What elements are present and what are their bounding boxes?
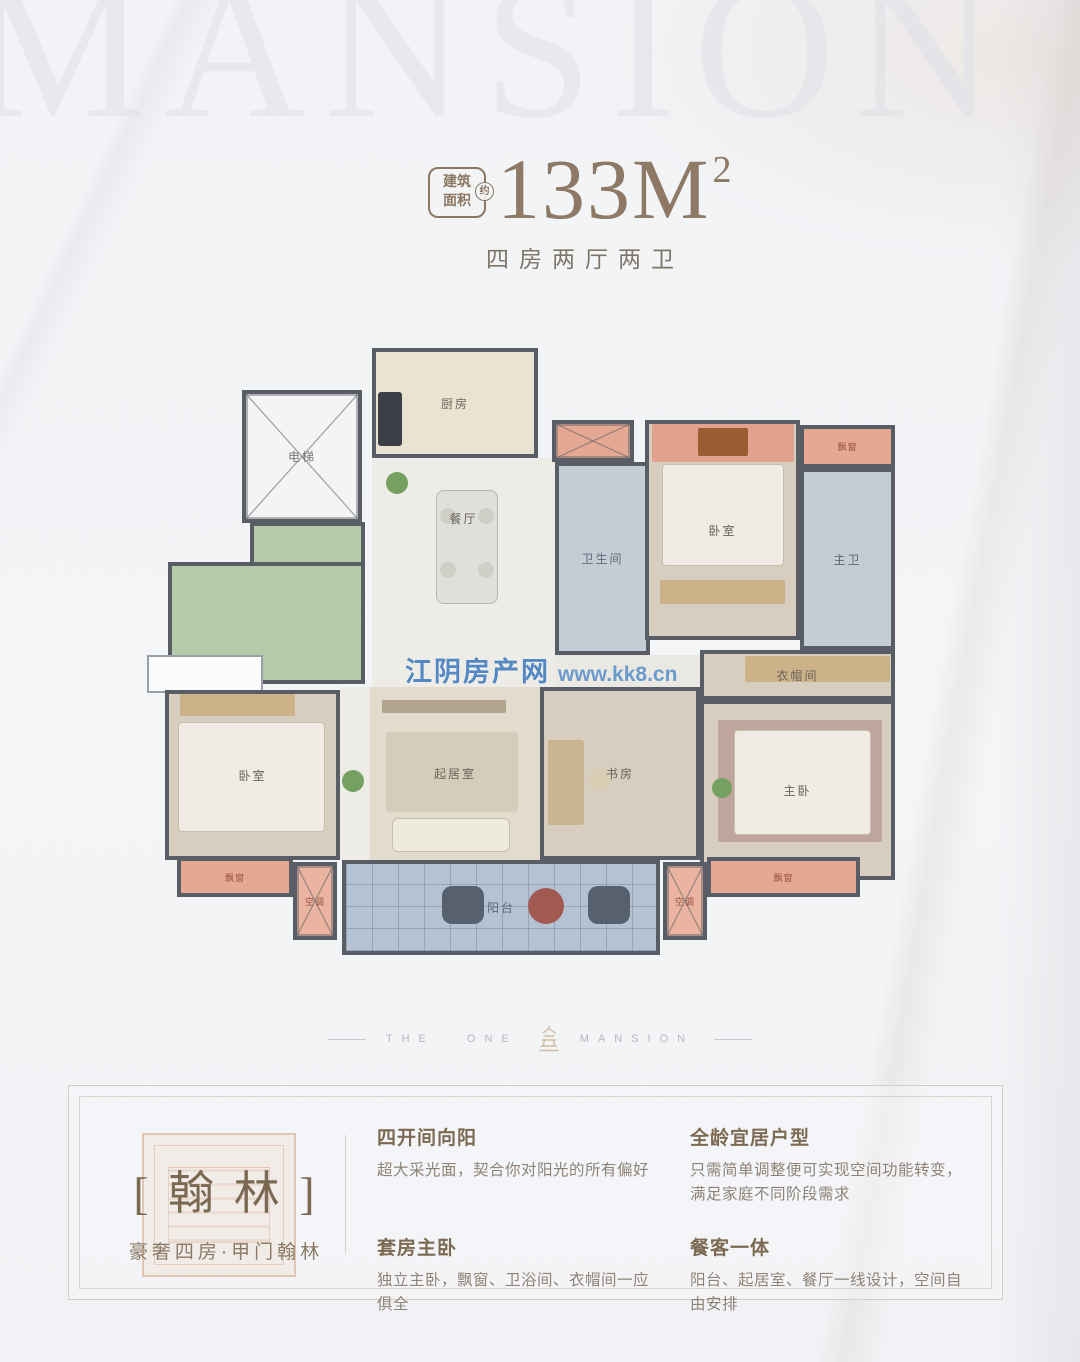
feature-title: 四开间向阳	[377, 1123, 662, 1150]
divider-dash	[328, 1039, 366, 1040]
info-box-inner-border: [ 翰 林 ] 豪奢四房·甲门翰林 四开间向阳超大采光面，契合你对阳光的所有偏好…	[79, 1096, 992, 1289]
feature-list: 四开间向阳超大采光面，契合你对阳光的所有偏好套房主卧独立主卧，飘窗、卫浴间、衣帽…	[377, 1123, 967, 1317]
furniture-balcony-chair	[588, 886, 630, 924]
room-ac-platform-north	[552, 420, 634, 462]
room-label: 电梯	[288, 448, 316, 465]
room-label: 主卫	[833, 551, 861, 568]
area-superscript: 2	[712, 149, 733, 191]
furniture-sofa	[392, 818, 510, 852]
feature-desc: 独立主卧，飘窗、卫浴间、衣帽间一应俱全	[377, 1269, 662, 1317]
furniture-wardrobe-sw	[180, 694, 295, 716]
furniture-bay-dresser	[698, 428, 748, 456]
mansion-watermark: MANSION	[0, 0, 1080, 163]
room-ac-platform-east: 空调	[663, 862, 707, 940]
info-box: [ 翰 林 ] 豪奢四房·甲门翰林 四开间向阳超大采光面，契合你对阳光的所有偏好…	[68, 1085, 1003, 1300]
unit-name: [ 翰 林 ]	[106, 1157, 346, 1223]
furniture-plant	[386, 472, 408, 494]
furniture-tv-cabinet	[382, 700, 506, 713]
pagoda-icon	[538, 1025, 560, 1053]
site-watermark: 江阴房产网www.kk8.cn	[405, 650, 677, 689]
room-west-window	[147, 655, 263, 693]
furniture-dining-table	[436, 490, 498, 604]
room-label: 书房	[606, 765, 634, 782]
site-watermark-name: 江阴房产网	[405, 657, 550, 687]
furniture-wardrobe-north	[660, 580, 785, 604]
furniture-plant	[712, 778, 732, 798]
area-value: 133M2	[497, 146, 731, 232]
room-bay-window-sw: 飘窗	[177, 857, 293, 897]
floorplan-poster: { "header": { "watermark": "MANSION", "b…	[0, 0, 1080, 1362]
room-label: 飘窗	[773, 871, 793, 884]
approx-circle: 约	[475, 182, 494, 201]
furniture-balcony-chair	[442, 886, 484, 924]
divider-text-left: THE ONE	[386, 1033, 518, 1045]
room-label: 起居室	[434, 765, 476, 782]
room-label: 空调	[675, 895, 695, 908]
room-green-terrace-upper	[250, 522, 365, 566]
room-label: 空调	[305, 895, 325, 908]
feature-desc: 超大采光面，契合你对阳光的所有偏好	[377, 1159, 662, 1183]
feature: 套房主卧独立主卧，飘窗、卫浴间、衣帽间一应俱全	[377, 1233, 662, 1317]
room-label: 卧室	[708, 522, 736, 539]
room-master-bathroom: 主卫	[800, 468, 895, 650]
room-bathroom: 卫生间	[555, 462, 650, 655]
room-label: 主卧	[783, 782, 811, 799]
room-label: 衣帽间	[776, 667, 818, 684]
room-label: 飘窗	[225, 871, 245, 884]
room-ac-platform-west: 空调	[293, 862, 337, 940]
furniture-dining-chair	[478, 562, 494, 578]
room-label: 餐厅	[449, 510, 477, 527]
unit-tagline: 豪奢四房·甲门翰林	[106, 1237, 346, 1264]
area-number: 133M	[497, 141, 710, 237]
feature-desc: 阳台、起居室、餐厅一线设计，空间自由安排	[690, 1269, 967, 1317]
room-label: 厨房	[441, 395, 469, 412]
unit-brand: [ 翰 林 ] 豪奢四房·甲门翰林	[106, 1115, 346, 1270]
room-bay-window-se: 飘窗	[707, 857, 860, 897]
feature-desc: 只需简单调整便可实现空间功能转变，满足家庭不同阶段需求	[690, 1159, 967, 1207]
furniture-bed-north	[662, 464, 784, 566]
feature-title: 全龄宜居户型	[690, 1123, 967, 1150]
furniture-desk	[548, 740, 584, 825]
feature-title: 餐客一体	[690, 1233, 967, 1260]
floor-plan: 电梯厨房餐厅卫生间卧室飘窗主卫衣帽间卧室起居室书房主卧阳台空调空调飘窗飘窗 江阴…	[90, 340, 940, 990]
room-elevator: 电梯	[242, 390, 362, 523]
furniture-dining-chair	[478, 508, 494, 524]
divider-text-right: MANSION	[580, 1033, 694, 1045]
room-label: 飘窗	[837, 440, 857, 453]
divider-dash	[714, 1039, 752, 1040]
layout-subtitle: 四房两厅两卫	[100, 240, 1070, 274]
room-bay-window-ne: 飘窗	[800, 425, 895, 468]
room-label: 阳台	[487, 899, 515, 916]
area-badge: 建筑 面积 约	[428, 167, 486, 218]
feature-title: 套房主卧	[377, 1233, 662, 1260]
feature: 餐客一体阳台、起居室、餐厅一线设计，空间自由安排	[690, 1233, 967, 1317]
feature: 全龄宜居户型只需简单调整便可实现空间功能转变，满足家庭不同阶段需求	[690, 1123, 967, 1207]
room-label: 卧室	[238, 767, 266, 784]
series-divider: THE ONE MANSION	[0, 1024, 1080, 1054]
furniture-dining-chair	[440, 562, 456, 578]
furniture-balcony-table	[528, 888, 564, 924]
site-watermark-url: www.kk8.cn	[558, 663, 677, 686]
furniture-stove	[378, 392, 402, 446]
furniture-plant	[342, 770, 364, 792]
room-label: 卫生间	[581, 550, 623, 567]
feature: 四开间向阳超大采光面，契合你对阳光的所有偏好	[377, 1123, 662, 1207]
